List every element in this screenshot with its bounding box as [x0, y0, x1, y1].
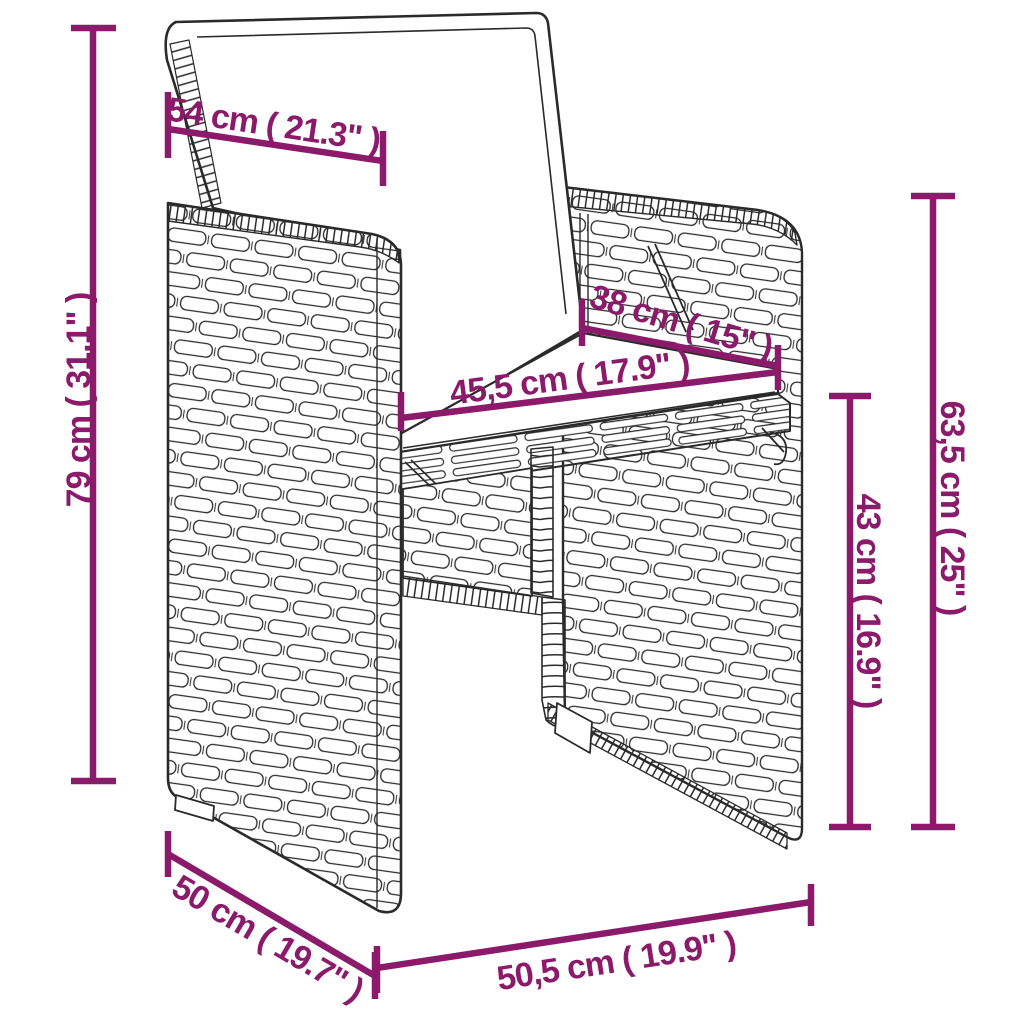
back-corner-post: [531, 447, 553, 597]
dimension-label: 63,5 cm ( 25" ): [933, 401, 971, 616]
dimension-label: 79 cm ( 31.1" ): [60, 293, 98, 508]
dimension-diagram-page: 54 cm ( 21.3" ) 79 cm ( 31.1" ) 38 cm ( …: [0, 0, 1024, 1024]
chair-left-side-panel: [168, 203, 401, 912]
dimension-total-height: 79 cm ( 31.1" ): [60, 28, 116, 781]
dimension-label: 43 cm ( 16.9" ): [849, 494, 887, 709]
dimension-base-width: 50,5 cm ( 19.9" ): [377, 884, 811, 998]
chair-illustration: [166, 13, 802, 912]
chair-dimension-diagram: 54 cm ( 21.3" ) 79 cm ( 31.1" ) 38 cm ( …: [0, 0, 1024, 1024]
dimension-seat-height: 43 cm ( 16.9" ): [829, 396, 887, 827]
dimension-armrest-height: 63,5 cm ( 25" ): [911, 196, 971, 827]
dimension-label: 50,5 cm ( 19.9" ): [494, 924, 738, 998]
